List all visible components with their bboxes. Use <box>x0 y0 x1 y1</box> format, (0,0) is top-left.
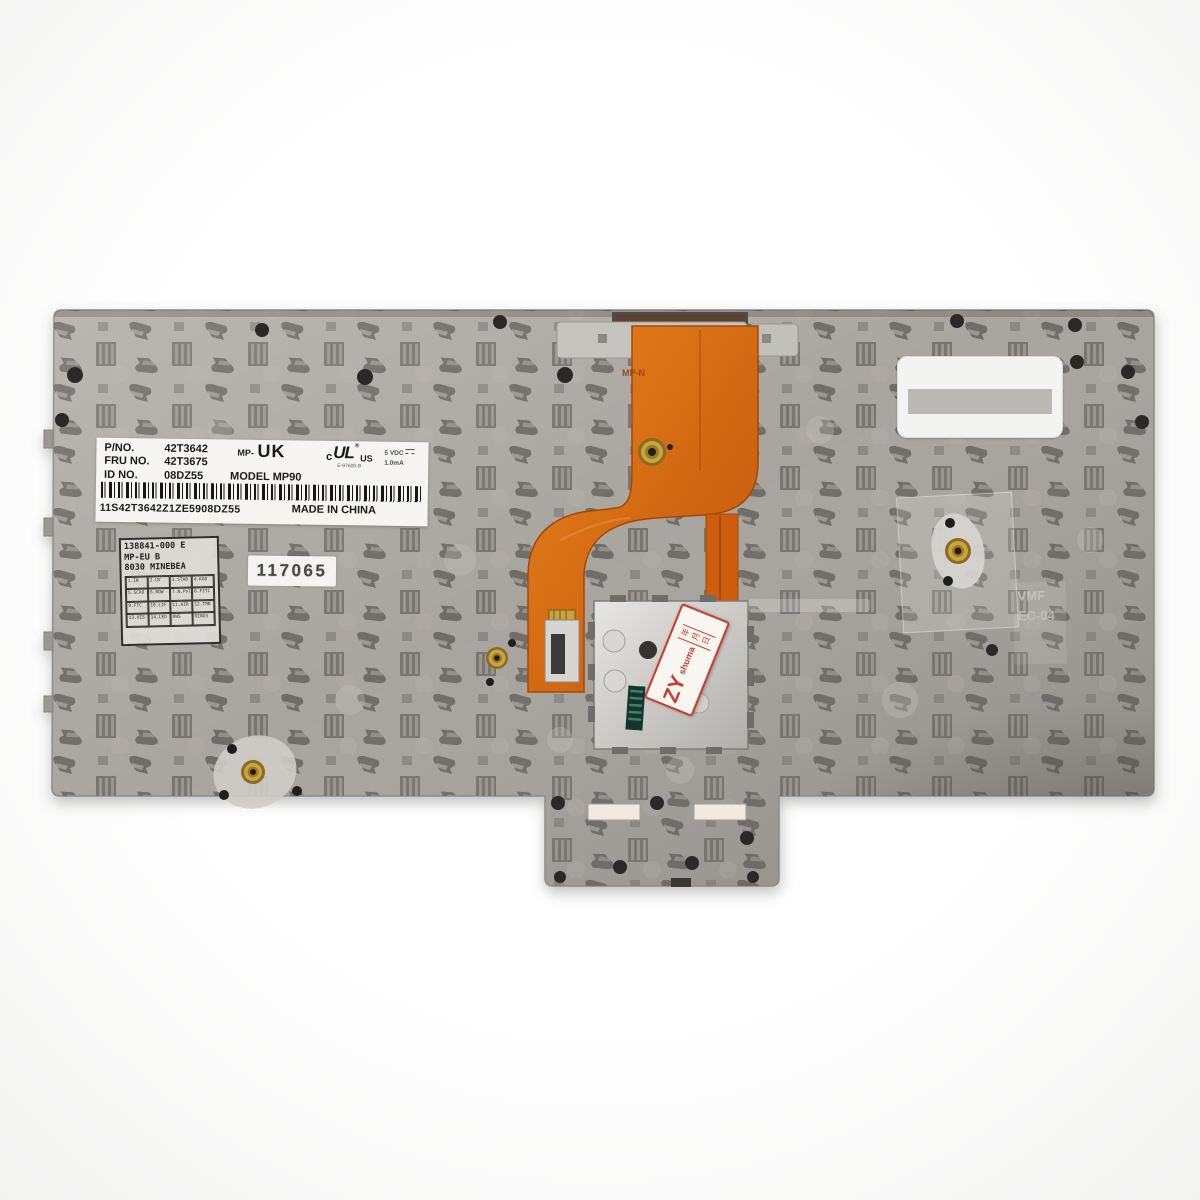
grid-cell: 14.LED <box>149 613 171 626</box>
grid-cell: RWS <box>171 613 193 626</box>
grid-cell: 5.SCRO <box>126 589 148 602</box>
pno-label: P/NO. <box>104 442 134 454</box>
ul-us: US <box>360 453 373 463</box>
barcode <box>101 482 422 502</box>
dc-symbol-icon <box>406 449 415 454</box>
grid-cell: RINGS <box>193 612 215 625</box>
grid-cell: 3.STAB <box>170 575 192 588</box>
grid-cell: 9.FTC <box>126 601 148 614</box>
cable-marking-text: MP-N <box>622 368 645 378</box>
inspection-grid: 1.IN 2.UV 3.STAB 4.KGD 5.SCRO 6.ROW 7.N.… <box>125 574 216 628</box>
tape-strip <box>748 599 870 612</box>
fru-value: 42T3675 <box>164 456 208 469</box>
product-photo: MP-N <box>0 0 1200 1200</box>
part-number-label: P/NO. 42T3642 MP- UK FRU NO. 42T3675 ID … <box>95 438 428 527</box>
qc-brand: ZY <box>659 672 691 706</box>
region-code: UK <box>257 441 285 462</box>
qc-stamp-patch: 117065 <box>248 556 336 587</box>
rating-current: 1.0mA <box>384 458 404 468</box>
qc-date-fields: 年月日 <box>677 624 715 651</box>
id-value: 08DZ55 <box>164 470 203 483</box>
rating-voltage: 5 VDC <box>384 450 403 457</box>
cable-connector <box>545 610 579 682</box>
qc-subtext: shuma <box>677 645 697 676</box>
faint-line-2: EC-04 <box>1018 605 1066 625</box>
sticker-gray-band <box>908 389 1052 414</box>
grid-cell: 1.IN <box>126 576 148 589</box>
fru-label: FRU NO. <box>104 455 149 468</box>
ul-c: c <box>326 451 332 463</box>
grid-cell: 13.VIS <box>127 614 149 627</box>
model-number: MODEL MP90 <box>230 471 301 484</box>
stamp-number: 117065 <box>256 561 327 582</box>
ul-logo: UL <box>333 443 354 463</box>
edge-tabs <box>44 430 53 712</box>
spec-line-3: 8030 MINEBEA <box>124 561 214 574</box>
right-eyelet <box>897 492 1019 633</box>
grid-cell: 11.AIR <box>170 600 192 613</box>
grid-cell: 2.UV <box>148 576 170 589</box>
grid-cell: 8.FITC <box>192 587 214 600</box>
id-label: ID NO. <box>104 469 138 481</box>
pno-value: 42T3642 <box>164 443 208 456</box>
ul-file-number: E-97600-B <box>320 463 378 470</box>
manufacturer-spec-label: 138841-000 E MP-EU B 8030 MINEBEA 1.IN 2… <box>119 536 221 646</box>
flex-cable-branch <box>706 514 738 606</box>
electrical-rating: 5 VDC 1.0mA <box>384 449 404 469</box>
grid-cell: 4.KGD <box>192 575 214 588</box>
ul-registered-icon: ® <box>355 443 360 449</box>
faint-line-1: VMF <box>1017 586 1065 606</box>
grid-cell: 6.ROW <box>148 588 170 601</box>
mp-prefix: MP- <box>237 448 254 458</box>
blank-sticker <box>897 356 1063 438</box>
ul-certification-mark: c UL ® US E-97600-B <box>320 443 378 470</box>
module-connector-green <box>625 685 645 730</box>
grid-cell: 12.TMB <box>192 600 214 613</box>
serial-number: 11S42T3642Z1ZE5908DZ55 <box>100 502 241 516</box>
grid-cell: 7.N.Pol <box>170 588 192 601</box>
country-of-origin: MADE IN CHINA <box>292 503 377 516</box>
grid-cell: 10.LIF <box>148 601 170 614</box>
faint-plate-marking: VMF EC-04 <box>1013 582 1066 665</box>
